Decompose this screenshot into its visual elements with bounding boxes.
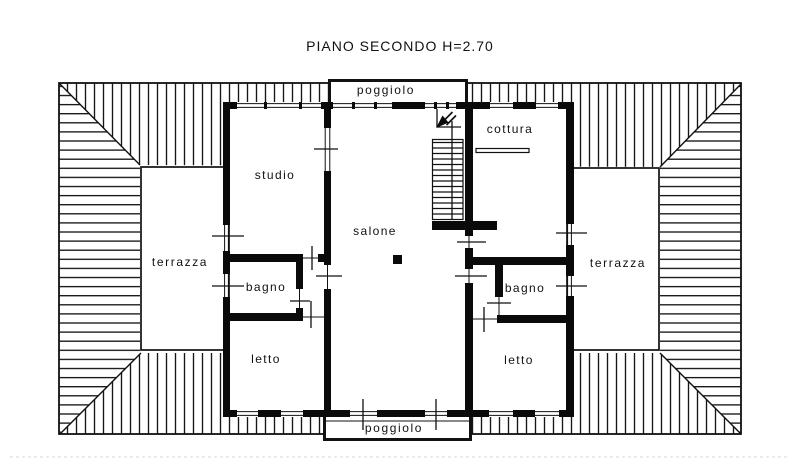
svg-text:studio: studio [255,168,295,182]
svg-text:salone: salone [353,224,397,238]
svg-text:letto: letto [251,352,281,366]
svg-text:bagno: bagno [505,281,545,295]
svg-text:cottura: cottura [487,122,534,136]
svg-text:bagno: bagno [246,280,286,294]
svg-text:poggiolo: poggiolo [365,421,423,435]
svg-text:terrazza: terrazza [152,255,208,269]
svg-text:letto: letto [504,353,534,367]
svg-text:poggiolo: poggiolo [357,83,415,97]
svg-text:PIANO SECONDO H=2.70: PIANO SECONDO H=2.70 [306,38,494,54]
svg-text:terrazza: terrazza [590,256,646,270]
